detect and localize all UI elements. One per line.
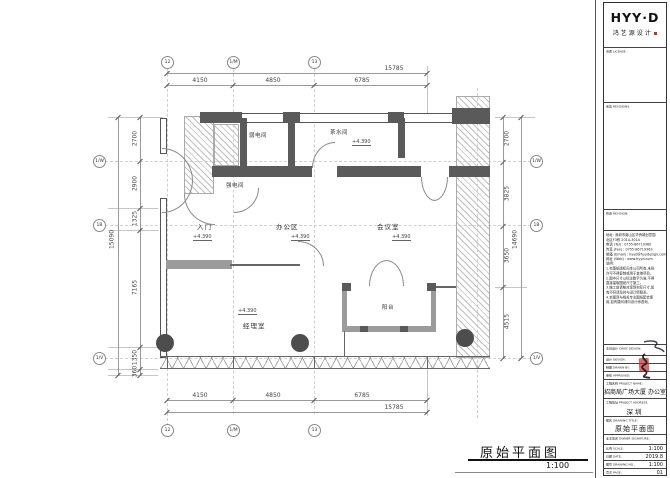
dim-label: 4150 — [186, 77, 214, 84]
dim-label: 7165 — [132, 273, 139, 303]
dim-line — [140, 117, 141, 375]
wall — [288, 118, 295, 172]
wall — [427, 283, 436, 291]
dim-label: 4150 — [186, 392, 214, 399]
project-address-label: 工程地址 PROJECT ADDRESS: — [606, 400, 648, 405]
project-name: 招商局广场大厦 办公室 — [604, 387, 666, 396]
grid-bubble: 13 — [308, 424, 321, 437]
room-label: 阳台 — [382, 303, 394, 311]
dim-line — [167, 412, 427, 413]
wall — [212, 166, 312, 177]
drawing-no-value: 1:100 — [649, 462, 663, 468]
date-value: 2019.8 — [646, 454, 664, 460]
grid-line — [167, 64, 168, 436]
door-arc — [298, 241, 324, 266]
titleblock-rule — [604, 379, 666, 380]
titleblock-rule — [604, 460, 666, 461]
door-arc — [386, 260, 404, 286]
window-mullion — [167, 356, 168, 369]
titleblock-rule — [604, 398, 666, 399]
dim-label: 6785 — [348, 392, 376, 399]
grid-bubble: 1/W — [93, 155, 106, 168]
wall — [449, 166, 490, 177]
dim-label: 15090 — [109, 225, 116, 255]
wall-line — [436, 286, 456, 288]
wall-line — [230, 264, 300, 266]
dim-label: 360 — [132, 357, 139, 387]
hatch-area — [214, 124, 239, 166]
drawing-title-label: 图名 DRAWING TITLE: — [606, 418, 638, 423]
caption-baseline — [455, 472, 593, 473]
brand-subtitle: 鸿艺源设计 — [604, 28, 666, 37]
room-label: 茶水间 — [330, 128, 348, 136]
wall — [400, 326, 408, 332]
dim-line — [521, 117, 522, 358]
dim-line — [118, 117, 119, 375]
drawing-sheet: 15785 4150 4850 6785 4150 4850 6785 1578… — [0, 0, 670, 478]
door-arc — [369, 260, 387, 286]
titleblock-rule — [604, 468, 666, 469]
window-mullion — [314, 356, 315, 369]
dim-line — [167, 73, 427, 74]
brand-red-mark-icon — [654, 32, 658, 36]
brand-subtitle-text: 鸿艺源设计 — [613, 30, 653, 37]
grid-bubble: 1B — [530, 219, 543, 232]
column — [456, 329, 474, 347]
wall — [342, 326, 436, 332]
signature-mark — [634, 353, 656, 379]
extension-line — [427, 362, 428, 416]
elevation-label: +4.390 — [291, 234, 310, 241]
license-label: 资质 LICENSE: — [606, 49, 627, 54]
elevation-label: +4.390 — [392, 234, 411, 241]
window-mullion — [427, 356, 428, 369]
wall — [342, 283, 351, 291]
grid-bubble: 12 — [161, 56, 174, 69]
chief-design-label: 主创设计 CHIEF DESIGN: — [606, 346, 641, 351]
elevation-label: +4.390 — [193, 234, 212, 241]
project-name-label: 工程名称 PROJECT NAME: — [606, 381, 643, 386]
wall — [431, 288, 436, 331]
owner-signature-label: 业主签名 OWNER SIGNATURE: — [606, 436, 650, 441]
dim-line — [167, 400, 427, 401]
door-arc — [234, 188, 259, 213]
drawing-no-label: 图号 DRAWING NO.: — [606, 462, 635, 467]
revisions-label: 会签 REVISIONS: — [606, 104, 630, 109]
page-value: 01 — [657, 470, 663, 476]
contact-notes: 地址: 深圳市南山区华侨城创意园 北区F3栋 201A-301A 电话 (Tel… — [606, 233, 669, 305]
wall — [337, 166, 421, 177]
titleblock-rule — [604, 102, 666, 103]
dim-label: 3825 — [504, 179, 511, 209]
dim-label: 14690 — [512, 225, 519, 255]
grid-bubble: 1/M — [227, 424, 240, 437]
wall — [342, 288, 347, 331]
column — [156, 334, 174, 352]
wall — [200, 112, 242, 123]
scale-value: 1:100 — [649, 446, 663, 452]
room-label: 经理室 — [243, 320, 266, 330]
dim-label: 1325 — [132, 204, 139, 234]
wall — [398, 118, 405, 158]
caption-underline — [468, 459, 588, 461]
date-label: 日期 DATE: — [606, 454, 622, 459]
window-mullion — [233, 356, 234, 369]
dim-label: 4850 — [259, 77, 287, 84]
wall — [212, 113, 490, 123]
room-label: 入门 — [197, 221, 212, 231]
design-label: 设计 DESIGN: — [606, 357, 626, 362]
door-arc — [434, 177, 448, 201]
titleblock-rule — [604, 444, 666, 445]
grid-bubble: 1/V — [530, 352, 543, 365]
dim-label: 4515 — [504, 307, 511, 337]
door-arc — [312, 142, 335, 168]
grid-bubble: 1/V — [93, 352, 106, 365]
dim-label: 15785 — [380, 65, 408, 72]
elevation-label: +4.390 — [238, 308, 257, 315]
page-label: 页次 PAGE: — [606, 470, 622, 475]
wall-line — [344, 331, 345, 356]
scale-label: 比例 SCALE: — [606, 446, 624, 451]
room-label: 弱电间 — [249, 131, 267, 139]
extension-line — [427, 66, 428, 120]
dim-label: 4850 — [259, 392, 287, 399]
titleblock-rule — [604, 452, 666, 453]
note-line: 用,如有疑问请向设计师咨询。 — [606, 300, 669, 305]
project-address: 深圳 — [604, 406, 666, 416]
hatch-area — [456, 96, 490, 358]
titleblock-rule — [604, 209, 666, 210]
room-label: 会议室 — [377, 221, 400, 231]
dim-label: 6785 — [348, 77, 376, 84]
drawing-title: 原始平面图 — [604, 424, 666, 434]
title-block: HYY·D 鸿艺源设计 资质 LICENSE: 会签 REVISIONS: 修改… — [603, 2, 667, 476]
grid-bubble: 1B — [93, 219, 106, 232]
wall — [240, 118, 247, 172]
brand-logo: HYY·D — [604, 10, 666, 25]
window-band — [160, 356, 490, 369]
wall — [360, 326, 368, 332]
elevation-label: +4.390 — [352, 139, 371, 146]
titleblock-separator — [595, 0, 596, 478]
wall — [166, 260, 232, 269]
dim-label: 2700 — [132, 124, 139, 154]
dim-label: 2700 — [504, 124, 511, 154]
room-label: 强电间 — [226, 181, 244, 189]
dim-label: 2900 — [132, 169, 139, 199]
titleblock-rule — [604, 47, 666, 48]
grid-bubble: 12 — [161, 424, 174, 437]
dim-line — [167, 85, 427, 86]
caption-scale: 1:100 — [546, 461, 569, 470]
titleblock-rule — [604, 230, 666, 231]
grid-bubble: 13 — [308, 56, 321, 69]
revision2-label: 修改 REVISION: — [606, 211, 628, 216]
drawn-by-label: 制图 DRAWN BY: — [606, 365, 630, 370]
room-label: 办公区 — [276, 221, 299, 231]
dim-label: 15785 — [380, 404, 408, 411]
approved-label: 审核 APPROVED: — [606, 373, 630, 378]
column — [291, 334, 309, 352]
titleblock-rule — [604, 434, 666, 435]
grid-bubble: 1/W — [530, 155, 543, 168]
extension-line — [495, 287, 527, 288]
titleblock-rule — [604, 416, 666, 417]
dim-label: 3650 — [504, 241, 511, 271]
grid-bubble: 1/M — [227, 56, 240, 69]
wall — [452, 108, 490, 124]
door-arc — [421, 177, 435, 201]
